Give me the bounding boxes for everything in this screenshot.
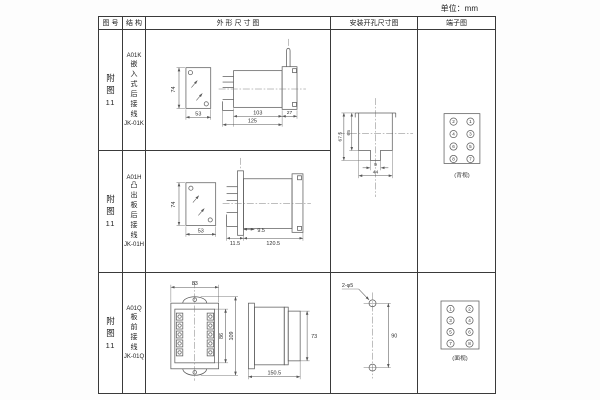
dim-44: 44 [373,170,379,176]
dim-9-5: 9.5 [257,228,265,234]
terminal-diagram-row3-cell: 1 3 5 7 2 4 6 8 (面视) [418,273,495,393]
dim-109: 109 [229,331,235,340]
code-jk01h: JK-01H [124,242,144,248]
datasheet-page: 单位：mm 图 号 结 构 外 形 尺 寸 图 安装开孔尺寸图 端子图 附 图 … [0,0,600,400]
terminal-numbers: 2 4 6 8 1 3 5 7 [452,119,472,161]
code-jk01q: JK-01Q [124,354,144,360]
view-caption-front: (面视) [452,354,468,362]
cutout-dims: 67.5 65 9 44 [337,113,392,178]
dim-9: 9 [374,162,377,168]
outline-drawing-a01k: 74 53 [146,30,330,150]
outline-drawing-a01k-cell: 74 53 [146,30,331,151]
dim-120-5: 120.5 [266,241,280,247]
front-view-dims: 74 53 [171,68,211,120]
header-outline-dims: 外 形 尺 寸 图 [146,17,331,30]
figure-no-row1: 附 图 11 [99,30,123,151]
svg-text:2: 2 [468,307,471,312]
outline-drawing-a01q-cell: 83 [146,273,331,393]
side-view [248,303,300,369]
svg-text:6: 6 [468,330,471,335]
svg-text:1: 1 [469,119,472,124]
dim-73: 73 [311,334,317,340]
dim-150-5: 150.5 [267,370,281,376]
outline-drawing-a01h-cell: 74 53 [146,151,331,273]
svg-text:8: 8 [452,157,455,162]
structure-row1: A01K 嵌 入 式 后 接 线 JK-01K [123,30,146,151]
svg-text:1: 1 [449,307,452,312]
terminal-block [444,114,480,164]
outline-drawing-a01q: 83 [146,273,330,393]
svg-text:3: 3 [449,318,452,323]
dim-90: 90 [391,333,397,339]
structure-row2: A01H 凸 出 板 后 接 线 JK-01H [123,151,146,273]
terminal-diagram-rows12: 2 4 6 8 1 3 5 7 (背视) [418,30,495,272]
side-view [227,171,303,235]
dim-125: 125 [248,119,257,125]
front-view-dims: 74 53 [171,183,216,237]
code-jk01k: JK-01K [124,121,144,127]
model-a01h: A01H [126,175,141,181]
svg-text:3: 3 [469,132,472,137]
dim-53: 53 [195,111,201,117]
unit-label: 单位：mm [398,3,478,14]
header-structure: 结 构 [123,17,146,30]
mounting-hole-drawing-row3-cell: 90 2-φ5 [331,273,418,393]
front-view [186,68,211,109]
svg-text:7: 7 [449,341,452,346]
svg-text:6: 6 [452,144,455,149]
svg-text:2: 2 [452,119,455,124]
side-view-dims: 9.5 11.5 120.5 [227,216,303,247]
outline-drawing-a01h: 74 53 [146,151,330,272]
figure-no-row3: 附 图 11 [99,273,123,393]
mounting-hole-drawing-rows12-cell: 67.5 65 9 44 [331,30,418,273]
svg-text:5: 5 [449,330,452,335]
terminal-diagram-row3: 1 3 5 7 2 4 6 8 (面视) [418,273,495,393]
front-view [186,183,216,226]
svg-text:4: 4 [452,132,455,137]
hole-dims: 90 2-φ5 [342,283,397,368]
svg-text:4: 4 [468,318,471,323]
svg-text:7: 7 [469,157,472,162]
side-view-dims: 73 150.5 [248,311,317,379]
terminal-diagram-rows12-cell: 2 4 6 8 1 3 5 7 (背视) [418,30,495,273]
dim-65: 65 [346,130,352,136]
dim-67-5: 67.5 [337,132,343,142]
dim-11-5: 11.5 [230,241,240,247]
dim-103: 103 [253,110,262,116]
mounting-hole-drawing-rows12: 67.5 65 9 44 [331,30,417,272]
model-a01q: A01Q [126,306,141,312]
view-caption-rear: (背视) [454,171,469,179]
header-mounting-dims: 安装开孔尺寸图 [331,17,418,30]
dim-53: 53 [198,228,204,234]
front-view-dims-right: 86 109 [201,297,238,376]
mounting-hole-drawing-row3: 90 2-φ5 [331,273,417,393]
dim-86: 86 [219,333,225,339]
dim-74: 74 [171,86,177,92]
model-a01k: A01K [127,53,142,59]
dim-27: 27 [287,110,293,116]
structure-row3: A01Q 板 前 接 线 JK-01Q [123,273,146,393]
figure-no-row2: 附 图 11 [99,151,123,273]
header-figure-no: 图 号 [99,17,123,30]
dim-74: 74 [171,202,177,208]
header-terminal-diagram: 端子图 [418,17,495,30]
side-view [223,48,297,110]
spec-table: 图 号 结 构 外 形 尺 寸 图 安装开孔尺寸图 端子图 附 图 11 A01… [98,16,496,394]
svg-text:8: 8 [468,341,471,346]
hole-size-label: 2-φ5 [342,283,353,289]
svg-text:5: 5 [469,144,472,149]
